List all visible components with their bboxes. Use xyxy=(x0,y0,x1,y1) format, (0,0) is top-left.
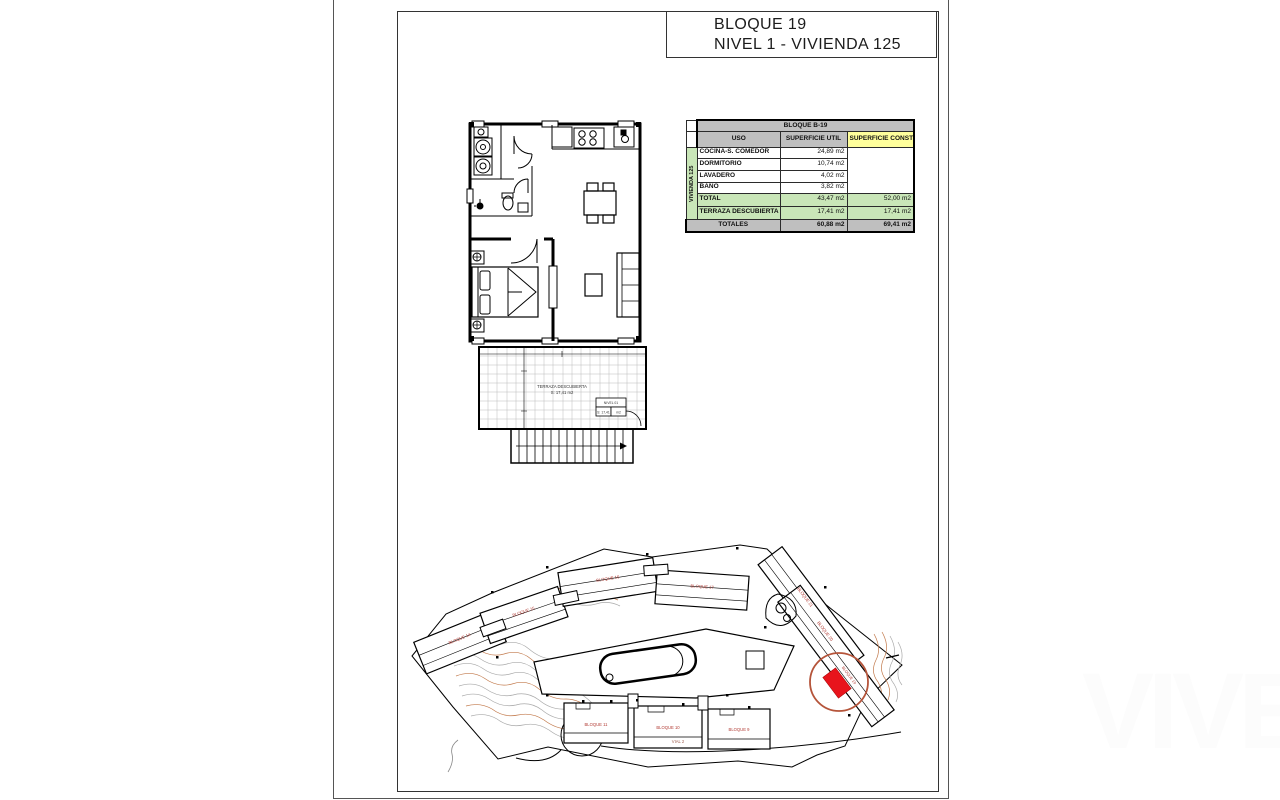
building-label: BLOQUE 9 xyxy=(729,727,751,732)
table-spacer xyxy=(686,131,697,147)
row-util: 3,82 m2 xyxy=(780,182,847,193)
totales-label: TOTALES xyxy=(686,219,780,232)
title-block: BLOQUE 19 NIVEL 1 - VIVIENDA 125 xyxy=(666,11,937,58)
terrace-label: TERRAZA DESCUBIERTA xyxy=(537,384,587,389)
dining-table xyxy=(584,183,616,223)
row-uso: COCINA-S. COMEDOR xyxy=(697,147,780,158)
col-header-construida: SUPERFICIE CONSTRUIDA xyxy=(847,131,914,147)
bed xyxy=(472,267,538,317)
row-util: 10,74 m2 xyxy=(780,158,847,170)
laundry-room xyxy=(470,125,514,179)
table-row: VIVIENDA 125 COCINA-S. COMEDOR 24,89 m2 xyxy=(686,147,914,158)
terrace-area-label: S: 17,41 m2 xyxy=(551,390,574,395)
stairs xyxy=(511,429,633,463)
table-row-totales: TOTALES 60,88 m2 69,41 m2 xyxy=(686,219,914,232)
level-box-cell-a: S: 17,41 xyxy=(597,411,610,415)
table-block-header: BLOQUE B-19 xyxy=(697,120,914,131)
bedroom xyxy=(470,239,557,341)
row-uso: TOTAL xyxy=(697,193,780,206)
floor-plan: TERRAZA DESCUBIERTA S: 17,41 m2 NIVEL 01… xyxy=(456,111,666,481)
unit-label-cell: VIVIENDA 125 xyxy=(686,147,697,219)
building-label: BLOQUE 10 xyxy=(656,725,680,730)
table-row-terraza: TERRAZA DESCUBIERTA 17,41 m2 17,41 m2 xyxy=(686,206,914,219)
kitchen-counter xyxy=(552,127,572,147)
living-room xyxy=(585,253,639,317)
road-label: VIAL 2 xyxy=(672,739,685,744)
table-row-total: TOTAL 43,47 m2 52,00 m2 xyxy=(686,193,914,206)
row-uso: LAVADERO xyxy=(697,170,780,182)
building-label: BLOQUE 11 xyxy=(585,722,609,727)
drawing-sheet: BLOQUE 19 NIVEL 1 - VIVIENDA 125 BLOQUE … xyxy=(333,0,949,799)
col-header-uso: USO xyxy=(697,131,780,147)
page: BLOQUE 19 NIVEL 1 - VIVIENDA 125 BLOQUE … xyxy=(0,0,1280,800)
site-plan: BLOQUE 14 BLOQUE 15 BLOQUE 16 BLOQUE 17 … xyxy=(396,536,916,776)
row-util: 17,41 m2 xyxy=(780,206,847,219)
row-uso: TERRAZA DESCUBIERTA xyxy=(697,206,780,219)
kitchen xyxy=(552,125,640,149)
level-box-title: NIVEL 01 xyxy=(604,401,619,405)
row-util: 4,02 m2 xyxy=(780,170,847,182)
row-util: 24,89 m2 xyxy=(780,147,847,158)
stove xyxy=(574,128,604,148)
area-table: BLOQUE B-19 USO SUPERFICIE UTIL SUPERFIC… xyxy=(685,119,915,233)
unit-label: VIVIENDA 125 xyxy=(689,148,695,219)
stair-direction-arrow xyxy=(620,443,627,450)
entry-door-arcs xyxy=(514,136,532,168)
row-construida: 52,00 m2 xyxy=(847,193,914,206)
row-uso: DORMITORIO xyxy=(697,158,780,170)
col-header-util: SUPERFICIE UTIL xyxy=(780,131,847,147)
table-spacer xyxy=(686,120,697,131)
building-block xyxy=(655,570,749,610)
title-line-1: BLOQUE 19 xyxy=(714,16,807,34)
row-construida: 17,41 m2 xyxy=(847,206,914,219)
level-box-cell-b: m2 xyxy=(616,411,621,415)
construida-merged-cell xyxy=(847,147,914,193)
totales-util: 60,88 m2 xyxy=(780,219,847,232)
title-line-2: NIVEL 1 - VIVIENDA 125 xyxy=(714,36,901,54)
vive-watermark: VIVE xyxy=(1082,648,1280,773)
coffee-table xyxy=(585,274,602,296)
row-uso: BAÑO xyxy=(697,182,780,193)
totales-construida: 69,41 m2 xyxy=(847,219,914,232)
row-util: 43,47 m2 xyxy=(780,193,847,206)
